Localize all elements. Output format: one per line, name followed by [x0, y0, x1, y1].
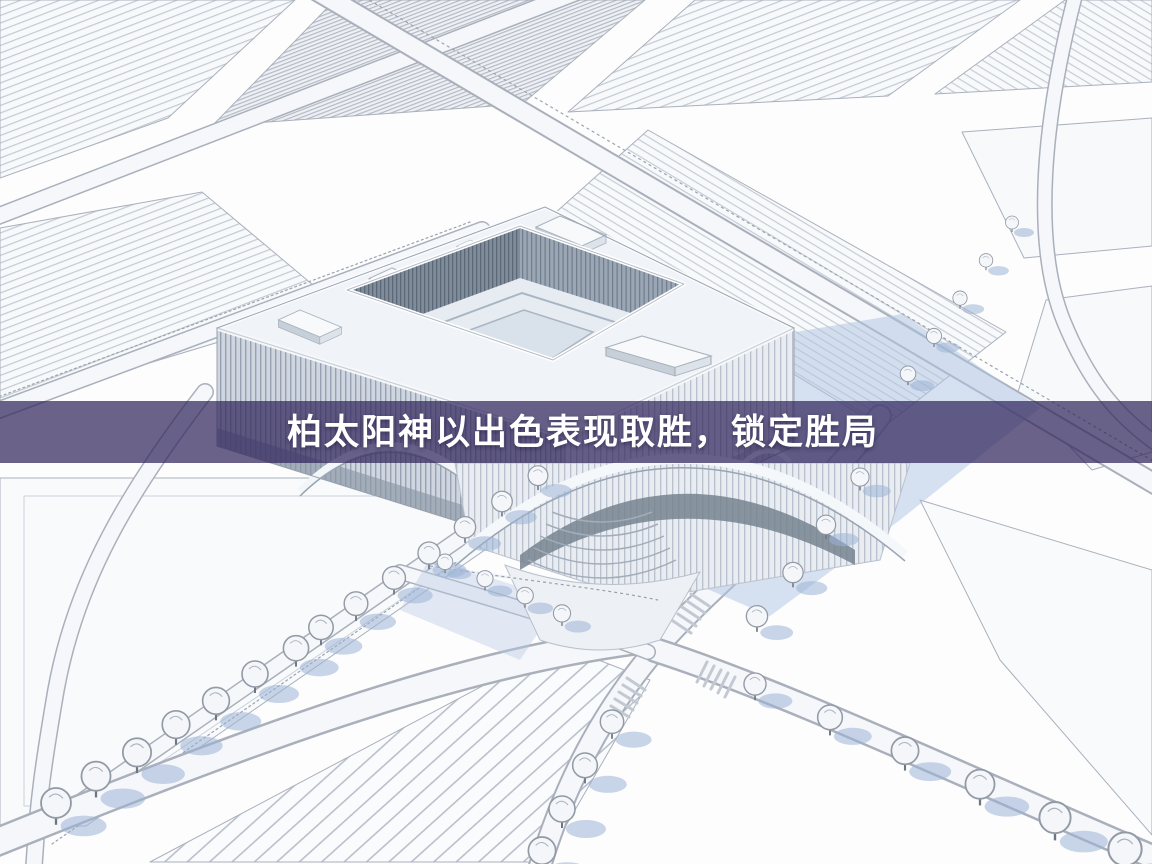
headline-banner: 柏太阳神以出色表现取胜，锁定胜局 [0, 401, 1152, 463]
screenshot: 柏太阳神以出色表现取胜，锁定胜局 [0, 0, 1152, 864]
headline-text: 柏太阳神以出色表现取胜，锁定胜局 [287, 415, 879, 450]
